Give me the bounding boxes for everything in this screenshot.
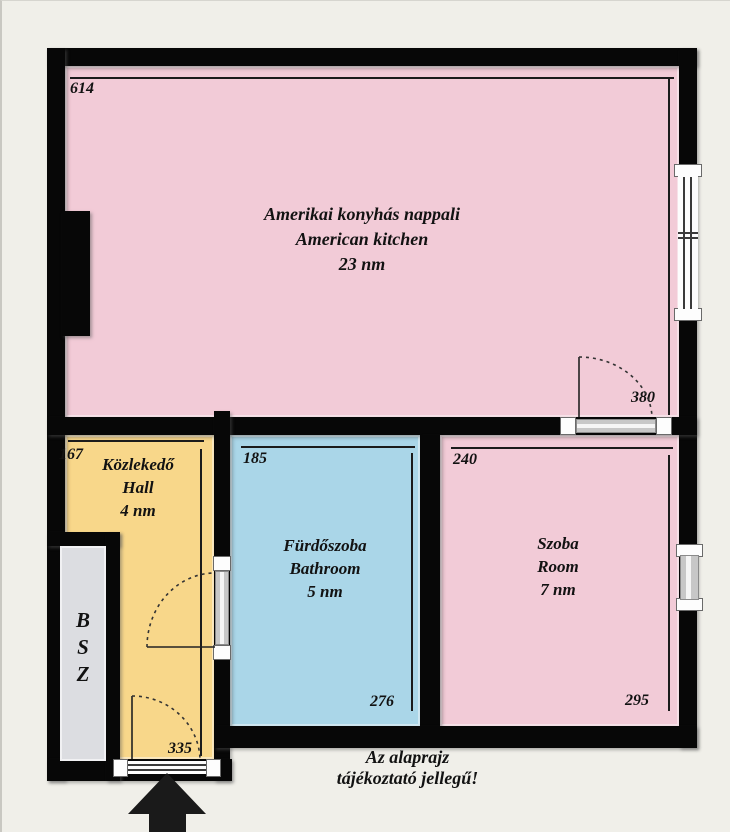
closet-frame-right — [106, 532, 120, 781]
wall-bathroom-bedroom — [420, 435, 440, 726]
hall-name-hu: Közlekedő — [74, 453, 202, 476]
door-jamb-icon — [656, 417, 672, 435]
door-symbol-bathroom — [213, 556, 231, 660]
disclaimer-text: Az alaprajz tájékoztató jellegű! — [280, 747, 535, 789]
living-name-hu: Amerikai konyhás nappali — [212, 202, 512, 227]
entrance-arrow-icon — [128, 773, 206, 832]
dim-label-bathroom-depth: 276 — [370, 693, 394, 711]
dim-line-bedroom-width — [451, 447, 673, 449]
living-area: 23 nm — [212, 252, 512, 277]
dim-label-living-width: 614 — [70, 80, 94, 98]
entrance-threshold — [128, 761, 206, 774]
disclaimer-line2: tájékoztató jellegű! — [280, 768, 535, 789]
dim-line-living-width — [70, 77, 674, 79]
hall-name-en: Hall — [74, 476, 202, 499]
disclaimer-line1: Az alaprajz — [280, 747, 535, 768]
wall-top — [47, 48, 697, 66]
floor-plan: B S Z — [0, 0, 730, 832]
dim-label-hall-depth: 335 — [168, 740, 192, 758]
dim-line-bathroom-depth — [411, 453, 413, 711]
dim-label-bathroom-width: 185 — [243, 450, 267, 468]
bathroom-name-en: Bathroom — [245, 557, 405, 580]
door-jamb-icon — [560, 417, 576, 435]
door-jamb-icon — [213, 556, 231, 571]
window-mullion — [678, 237, 698, 239]
door-leaf-highlight — [577, 424, 655, 428]
bathroom-name-hu: Fürdőszoba — [245, 534, 405, 557]
closet-letter-z: Z — [60, 661, 106, 688]
dim-line-living-depth — [668, 77, 670, 415]
door-jamb-icon — [213, 645, 231, 660]
dim-line-bedroom-depth — [668, 455, 670, 711]
closet-letter-s: S — [60, 634, 106, 661]
closet-label: B S Z — [60, 607, 106, 688]
wall-pillar — [62, 211, 90, 336]
bedroom-area: 7 nm — [478, 578, 638, 601]
hall-area: 4 nm — [74, 499, 202, 522]
window-symbol-bedroom — [676, 544, 703, 611]
door-jamb-icon — [206, 759, 221, 777]
dim-line-bathroom-width — [241, 446, 415, 448]
window-mullion — [678, 232, 698, 234]
dim-label-bedroom-width: 240 — [453, 451, 477, 469]
dim-label-living-depth: 380 — [631, 389, 655, 407]
wall-right — [679, 48, 697, 748]
bedroom-name-hu: Szoba — [478, 532, 638, 555]
threshold-line — [128, 764, 206, 766]
dim-line-hall-width — [68, 440, 204, 442]
label-bathroom: Fürdőszoba Bathroom 5 nm — [245, 534, 405, 603]
door-leaf-highlight — [220, 572, 224, 644]
living-name-en: American kitchen — [212, 227, 512, 252]
dim-label-bedroom-depth: 295 — [625, 692, 649, 710]
threshold-line — [128, 769, 206, 771]
wall-bottom — [214, 726, 697, 748]
window-pane-line — [690, 177, 692, 309]
door-symbol-entrance — [113, 758, 221, 778]
closet-letter-b: B — [60, 607, 106, 634]
label-hall: Közlekedő Hall 4 nm — [74, 453, 202, 522]
label-living-kitchen: Amerikai konyhás nappali American kitche… — [212, 202, 512, 277]
bathroom-area: 5 nm — [245, 580, 405, 603]
door-symbol-bedroom — [560, 417, 672, 435]
window-glass — [678, 176, 698, 310]
bedroom-name-en: Room — [478, 555, 638, 578]
window-sash-highlight — [686, 556, 691, 599]
window-pane-line — [683, 177, 685, 309]
door-jamb-icon — [113, 759, 128, 777]
window-symbol-living — [674, 164, 702, 321]
label-bedroom: Szoba Room 7 nm — [478, 532, 638, 601]
